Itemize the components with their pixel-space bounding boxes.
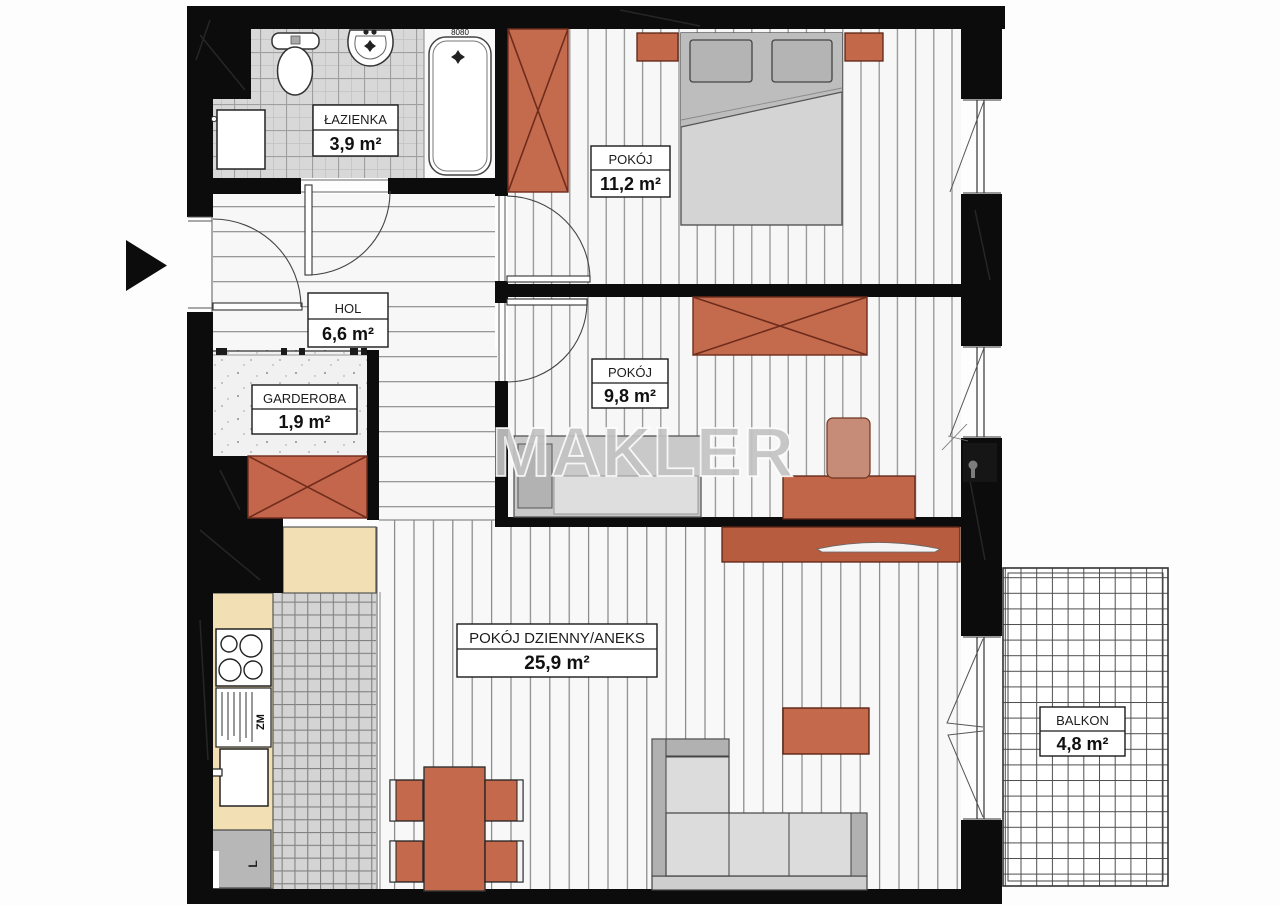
svg-text:9,8 m²: 9,8 m² xyxy=(604,386,656,406)
svg-text:8080: 8080 xyxy=(451,28,469,37)
svg-text:MAKLER: MAKLER xyxy=(492,413,794,491)
svg-text:1,9 m²: 1,9 m² xyxy=(278,412,330,432)
svg-text:BALKON: BALKON xyxy=(1056,713,1109,728)
svg-text:L: L xyxy=(246,860,260,867)
svg-text:ŁAZIENKA: ŁAZIENKA xyxy=(324,112,387,127)
svg-text:6,6 m²: 6,6 m² xyxy=(322,324,374,344)
svg-text:POKÓJ DZIENNY/ANEKS: POKÓJ DZIENNY/ANEKS xyxy=(469,630,645,647)
svg-text:11,2 m²: 11,2 m² xyxy=(600,174,661,194)
svg-text:POKÓJ: POKÓJ xyxy=(608,365,652,380)
svg-text:ZM: ZM xyxy=(255,714,267,730)
svg-text:HOL: HOL xyxy=(335,301,362,316)
svg-text:3,9 m²: 3,9 m² xyxy=(329,134,381,154)
svg-text:4,8 m²: 4,8 m² xyxy=(1056,734,1108,754)
svg-text:25,9 m²: 25,9 m² xyxy=(524,653,589,674)
svg-text:POKÓJ: POKÓJ xyxy=(608,152,652,167)
svg-text:GARDEROBA: GARDEROBA xyxy=(263,391,346,406)
